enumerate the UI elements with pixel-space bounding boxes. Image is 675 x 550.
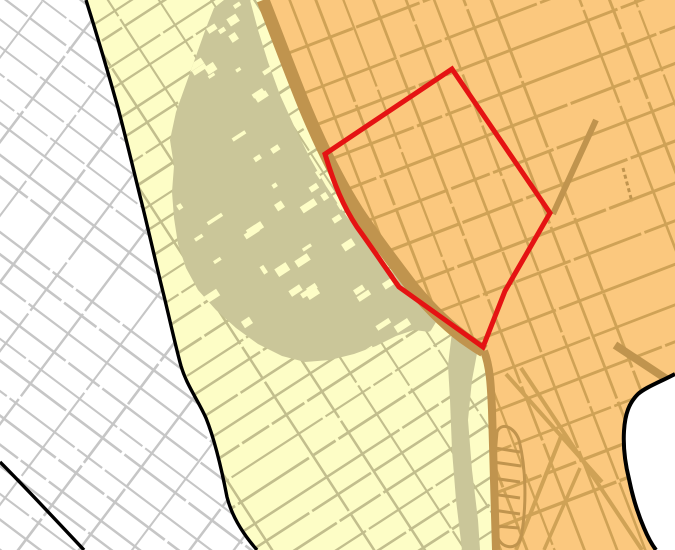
map-viewport[interactable] xyxy=(0,0,675,550)
cadastral-map-canvas[interactable] xyxy=(0,0,675,550)
